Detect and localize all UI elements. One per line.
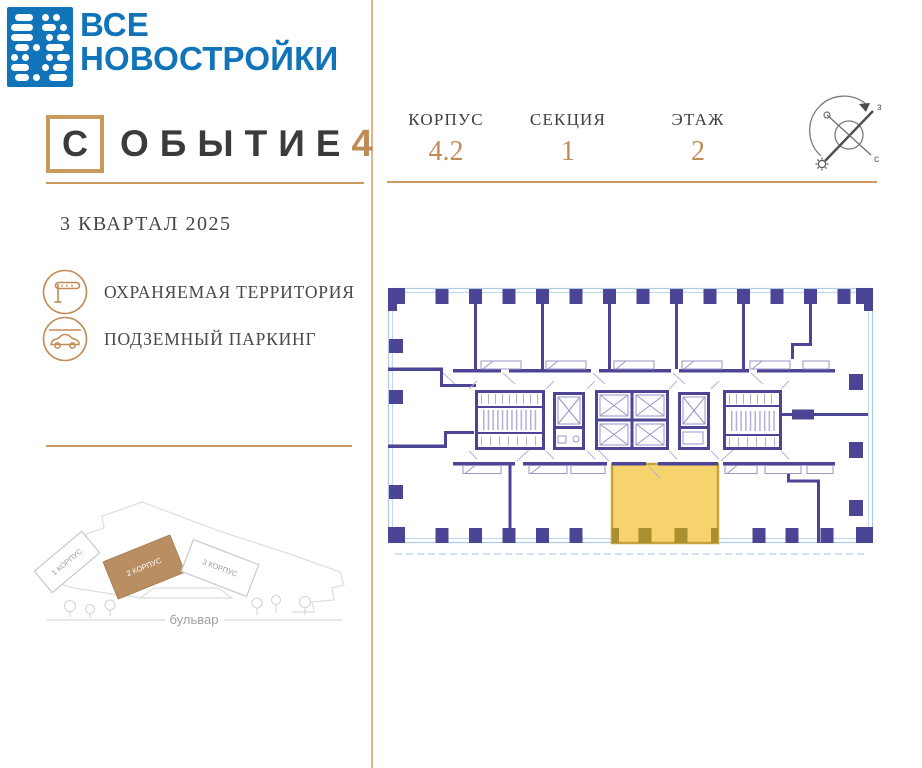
floor-plan [383,286,883,566]
field-etazh-label: ЭТАЖ [650,110,746,130]
project-first-letter: С [62,123,88,165]
flat-plan-page: ВСЕ НОВОСТРОЙКИ С ОБЫТИЕ 4 3 КВАРТАЛ 202… [0,0,922,768]
completion-date: 3 КВАРТАЛ 2025 [60,213,231,236]
project-logo: С ОБЫТИЕ 4 [46,116,373,172]
amenity-label: ОХРАНЯЕМАЯ ТЕРРИТОРИЯ [104,282,355,303]
selected-apartment[interactable] [612,464,718,543]
minimap-building-2-selected[interactable]: 2 КОРПУС [103,535,185,599]
barrier-gate-icon [42,269,88,315]
field-korpus: КОРПУС 4.2 [398,110,494,168]
field-etazh: ЭТАЖ 2 [650,110,746,168]
amenity-guarded-territory: ОХРАНЯЕМАЯ ТЕРРИТОРИЯ [42,269,355,315]
amenity-label: ПОДЗЕМНЫЙ ПАРКИНГ [104,329,316,350]
car-parking-icon [42,316,88,362]
site-map: 1 КОРПУС 2 КОРПУС 3 КОРПУС бульвар [22,490,357,645]
sidebar-separator [46,445,352,447]
brand-logo-icon [7,7,73,87]
project-underline [46,182,364,184]
project-name-rest: ОБЫТИЕ [120,123,351,165]
compass-label-se: с [874,154,879,165]
amenity-underground-parking: ПОДЗЕМНЫЙ ПАРКИНГ [42,316,316,362]
project-number: 4 [351,123,372,166]
street-label: бульвар [170,612,219,627]
minimap-building-1[interactable]: 1 КОРПУС [34,531,99,592]
field-sekciya: СЕКЦИЯ 1 [520,110,616,168]
project-first-letter-box: С [46,115,104,173]
compass-icon: з с [808,90,888,180]
field-sekciya-label: СЕКЦИЯ [520,110,616,130]
field-korpus-label: КОРПУС [398,110,494,130]
compass-label-ne: з [877,102,882,113]
plan-header-separator [387,181,877,183]
field-etazh-value: 2 [650,136,746,168]
field-sekciya-value: 1 [520,136,616,168]
brand-line2: НОВОСТРОЙКИ [80,42,338,76]
brand-line1: ВСЕ [80,8,338,42]
brand-wordmark: ВСЕ НОВОСТРОЙКИ [80,8,338,76]
field-korpus-value: 4.2 [398,136,494,168]
